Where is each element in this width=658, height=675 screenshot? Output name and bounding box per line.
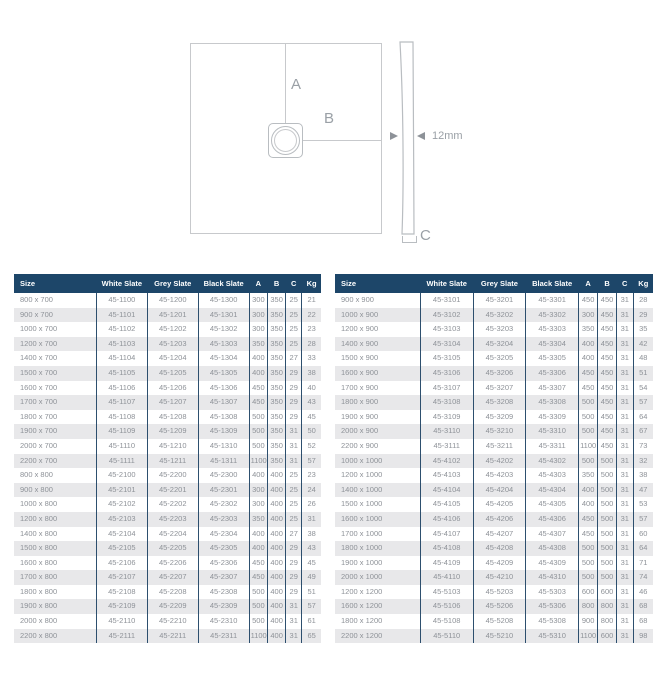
table-row: 1700 x 100045-410745-420745-430745050031… <box>335 527 653 542</box>
table-cell: 45-1101 <box>96 308 147 323</box>
table-cell: 45-3101 <box>420 293 473 308</box>
table-cell: 45-2201 <box>147 483 198 498</box>
table-cell: 350 <box>268 308 286 323</box>
table-cell: 450 <box>579 293 598 308</box>
table-cell: 31 <box>616 629 633 644</box>
table-cell: 48 <box>633 351 653 366</box>
table-cell: 45-5210 <box>473 629 526 644</box>
table-cell: 45-1108 <box>96 410 147 425</box>
dimension-c-bracket <box>402 236 417 243</box>
table-cell: 31 <box>616 614 633 629</box>
size-table-700-800: SizeWhite SlateGrey SlateBlack SlateABCK… <box>14 274 321 643</box>
table-cell: 1600 x 700 <box>14 381 96 396</box>
column-header: C <box>616 274 633 293</box>
table-cell: 68 <box>633 599 653 614</box>
table-cell: 1400 x 700 <box>14 351 96 366</box>
table-cell: 1000 x 700 <box>14 322 96 337</box>
table-cell: 31 <box>286 614 302 629</box>
table-cell: 45-1207 <box>147 395 198 410</box>
column-header: B <box>598 274 617 293</box>
table-cell: 45-3309 <box>526 410 579 425</box>
table-cell: 1500 x 700 <box>14 366 96 381</box>
table-cell: 500 <box>598 468 617 483</box>
table-cell: 21 <box>302 293 321 308</box>
table-cell: 500 <box>579 395 598 410</box>
table-cell: 45-4108 <box>420 541 473 556</box>
table-cell: 45-5306 <box>526 599 579 614</box>
size-table-900-1000-1200: SizeWhite SlateGrey SlateBlack SlateABCK… <box>335 274 653 643</box>
table-cell: 450 <box>598 308 617 323</box>
table-cell: 31 <box>286 629 302 644</box>
table-cell: 31 <box>616 454 633 469</box>
table-cell: 1000 x 900 <box>335 308 420 323</box>
table-cell: 25 <box>286 308 302 323</box>
table-cell: 450 <box>579 527 598 542</box>
table-cell: 28 <box>633 293 653 308</box>
table-cell: 350 <box>268 439 286 454</box>
table-cell: 31 <box>286 439 302 454</box>
table-cell: 68 <box>633 614 653 629</box>
table-cell: 350 <box>249 337 268 352</box>
table-cell: 98 <box>633 629 653 644</box>
table-cell: 23 <box>302 468 321 483</box>
table-cell: 71 <box>633 556 653 571</box>
table-cell: 2200 x 1200 <box>335 629 420 644</box>
table-cell: 45-3104 <box>420 337 473 352</box>
table-cell: 1500 x 1000 <box>335 497 420 512</box>
table-cell: 2200 x 700 <box>14 454 96 469</box>
table-cell: 45-1202 <box>147 322 198 337</box>
table-cell: 45-3302 <box>526 308 579 323</box>
table-row: 1200 x 80045-210345-220345-2303350400253… <box>14 512 321 527</box>
table-cell: 45-2308 <box>198 585 249 600</box>
column-header: White Slate <box>96 274 147 293</box>
table-cell: 450 <box>249 556 268 571</box>
table-cell: 31 <box>616 351 633 366</box>
table-row: 1400 x 70045-110445-120445-1304400350273… <box>14 351 321 366</box>
table-cell: 51 <box>633 366 653 381</box>
table-cell: 1400 x 900 <box>335 337 420 352</box>
table-cell: 29 <box>286 366 302 381</box>
table-cell: 500 <box>598 570 617 585</box>
table-cell: 38 <box>302 527 321 542</box>
table-cell: 400 <box>268 527 286 542</box>
column-header: White Slate <box>420 274 473 293</box>
table-row: 1800 x 120045-510845-520845-530890080031… <box>335 614 653 629</box>
table-cell: 25 <box>286 337 302 352</box>
table-cell: 1200 x 1000 <box>335 468 420 483</box>
table-cell: 45-1305 <box>198 366 249 381</box>
table-cell: 45-3202 <box>473 308 526 323</box>
table-cell: 29 <box>286 395 302 410</box>
table-cell: 45-4207 <box>473 527 526 542</box>
table-cell: 31 <box>616 497 633 512</box>
table-cell: 31 <box>616 337 633 352</box>
table-cell: 45-2304 <box>198 527 249 542</box>
table-cell: 1000 x 1000 <box>335 454 420 469</box>
column-header: Kg <box>302 274 321 293</box>
table-cell: 45-4310 <box>526 570 579 585</box>
table-cell: 65 <box>302 629 321 644</box>
table-cell: 31 <box>616 366 633 381</box>
column-header: A <box>249 274 268 293</box>
table-cell: 45-1307 <box>198 395 249 410</box>
table-cell: 46 <box>633 585 653 600</box>
table-row: 1000 x 80045-210245-220245-2302300400252… <box>14 497 321 512</box>
table-cell: 23 <box>302 322 321 337</box>
table-cell: 45-2100 <box>96 468 147 483</box>
table-cell: 25 <box>286 322 302 337</box>
table-cell: 25 <box>286 483 302 498</box>
table-cell: 45-2301 <box>198 483 249 498</box>
table-cell: 45-5308 <box>526 614 579 629</box>
table-cell: 45-1205 <box>147 366 198 381</box>
table-cell: 300 <box>249 483 268 498</box>
table-cell: 1900 x 700 <box>14 424 96 439</box>
table-cell: 31 <box>616 293 633 308</box>
table-row: 1800 x 80045-210845-220845-2308500400295… <box>14 585 321 600</box>
table-cell: 38 <box>302 366 321 381</box>
table-cell: 350 <box>268 454 286 469</box>
table-cell: 29 <box>286 381 302 396</box>
table-row: 1600 x 80045-210645-220645-2306450400294… <box>14 556 321 571</box>
table-cell: 25 <box>286 293 302 308</box>
table-cell: 31 <box>616 541 633 556</box>
table-row: 2200 x 80045-211145-221145-2311110040031… <box>14 629 321 644</box>
table-cell: 31 <box>616 395 633 410</box>
table-cell: 400 <box>268 629 286 644</box>
column-header: C <box>286 274 302 293</box>
table-cell: 45-2209 <box>147 599 198 614</box>
table-cell: 350 <box>268 395 286 410</box>
table-cell: 400 <box>268 599 286 614</box>
table-row: 1800 x 90045-310845-320845-3308500450315… <box>335 395 653 410</box>
table-cell: 300 <box>249 308 268 323</box>
table-cell: 400 <box>268 570 286 585</box>
table-cell: 45-2111 <box>96 629 147 644</box>
table-cell: 45-2205 <box>147 541 198 556</box>
table-cell: 400 <box>268 585 286 600</box>
table-cell: 45-1103 <box>96 337 147 352</box>
table-cell: 350 <box>268 337 286 352</box>
table-cell: 45-1203 <box>147 337 198 352</box>
table-cell: 400 <box>268 512 286 527</box>
thickness-arrow-left-icon <box>390 132 398 140</box>
table-cell: 45-3206 <box>473 366 526 381</box>
table-cell: 45-5108 <box>420 614 473 629</box>
table-cell: 45-4208 <box>473 541 526 556</box>
table-cell: 1800 x 700 <box>14 410 96 425</box>
table-cell: 1600 x 800 <box>14 556 96 571</box>
table-row: 1200 x 100045-410345-420345-430335050031… <box>335 468 653 483</box>
table-cell: 350 <box>579 322 598 337</box>
table-cell: 2200 x 800 <box>14 629 96 644</box>
table-cell: 1900 x 1000 <box>335 556 420 571</box>
table-cell: 45-3106 <box>420 366 473 381</box>
column-header: Grey Slate <box>473 274 526 293</box>
table-row: 1600 x 90045-310645-320645-3306450450315… <box>335 366 653 381</box>
table-cell: 500 <box>598 512 617 527</box>
table-cell: 31 <box>616 410 633 425</box>
table-cell: 57 <box>633 512 653 527</box>
table-cell: 45-2211 <box>147 629 198 644</box>
table-cell: 450 <box>598 410 617 425</box>
table-cell: 45-3110 <box>420 424 473 439</box>
table-cell: 45-3204 <box>473 337 526 352</box>
table-cell: 450 <box>598 337 617 352</box>
table-cell: 45-4303 <box>526 468 579 483</box>
table-cell: 1100 <box>579 629 598 644</box>
table-row: 2000 x 80045-211045-221045-2310500400316… <box>14 614 321 629</box>
table-cell: 45-4107 <box>420 527 473 542</box>
table-cell: 45-3107 <box>420 381 473 396</box>
table-cell: 31 <box>616 556 633 571</box>
drain-inner-ring <box>274 129 297 152</box>
table-cell: 25 <box>286 512 302 527</box>
table-cell: 73 <box>633 439 653 454</box>
table-cell: 45-2106 <box>96 556 147 571</box>
table-row: 1400 x 100045-410445-420445-430440050031… <box>335 483 653 498</box>
column-header: Size <box>14 274 96 293</box>
tray-side-profile <box>397 41 419 236</box>
table-cell: 450 <box>249 381 268 396</box>
table-cell: 2000 x 900 <box>335 424 420 439</box>
table-cell: 45-1111 <box>96 454 147 469</box>
table-row: 1900 x 90045-310945-320945-3309500450316… <box>335 410 653 425</box>
table-cell: 400 <box>579 351 598 366</box>
table-cell: 300 <box>579 308 598 323</box>
table-cell: 45-1106 <box>96 381 147 396</box>
table-cell: 45-1100 <box>96 293 147 308</box>
table-cell: 1800 x 800 <box>14 585 96 600</box>
table-cell: 45-1102 <box>96 322 147 337</box>
table-cell: 45-5310 <box>526 629 579 644</box>
table-cell: 350 <box>268 293 286 308</box>
table-cell: 45-2203 <box>147 512 198 527</box>
table-cell: 22 <box>302 308 321 323</box>
table-cell: 29 <box>633 308 653 323</box>
table-cell: 400 <box>268 556 286 571</box>
table-cell: 500 <box>598 556 617 571</box>
table-cell: 45-2300 <box>198 468 249 483</box>
table-cell: 45-4306 <box>526 512 579 527</box>
table-cell: 2000 x 700 <box>14 439 96 454</box>
table-cell: 800 <box>579 599 598 614</box>
table-cell: 45-3108 <box>420 395 473 410</box>
table-cell: 45-4110 <box>420 570 473 585</box>
table-cell: 45-2202 <box>147 497 198 512</box>
table-cell: 49 <box>302 570 321 585</box>
table-cell: 500 <box>598 527 617 542</box>
table-cell: 45-2103 <box>96 512 147 527</box>
table-cell: 450 <box>598 322 617 337</box>
table-cell: 45-3303 <box>526 322 579 337</box>
table-cell: 800 <box>598 614 617 629</box>
table-cell: 31 <box>616 585 633 600</box>
table-cell: 45 <box>302 410 321 425</box>
spec-tables: SizeWhite SlateGrey SlateBlack SlateABCK… <box>14 274 653 643</box>
table-cell: 27 <box>286 351 302 366</box>
table-cell: 31 <box>302 512 321 527</box>
table-cell: 45-1300 <box>198 293 249 308</box>
table-cell: 45-1107 <box>96 395 147 410</box>
table-cell: 31 <box>286 424 302 439</box>
table-cell: 45-3211 <box>473 439 526 454</box>
table-cell: 450 <box>598 439 617 454</box>
table-cell: 32 <box>633 454 653 469</box>
table-cell: 400 <box>268 614 286 629</box>
table-cell: 45-5208 <box>473 614 526 629</box>
table-cell: 1500 x 900 <box>335 351 420 366</box>
table-cell: 1900 x 900 <box>335 410 420 425</box>
table-cell: 45-2200 <box>147 468 198 483</box>
table-row: 900 x 90045-310145-320145-33014504503128 <box>335 293 653 308</box>
table-cell: 450 <box>598 351 617 366</box>
table-cell: 1600 x 1000 <box>335 512 420 527</box>
table-cell: 45-3311 <box>526 439 579 454</box>
table-row: 1000 x 90045-310245-320245-3302300450312… <box>335 308 653 323</box>
table-cell: 45-3301 <box>526 293 579 308</box>
table-cell: 45-1105 <box>96 366 147 381</box>
table-cell: 52 <box>302 439 321 454</box>
table-cell: 25 <box>286 468 302 483</box>
table-cell: 400 <box>268 541 286 556</box>
table-cell: 45-1204 <box>147 351 198 366</box>
table-cell: 45-4102 <box>420 454 473 469</box>
table-cell: 450 <box>579 366 598 381</box>
table-cell: 1700 x 900 <box>335 381 420 396</box>
table-cell: 31 <box>616 483 633 498</box>
table-cell: 31 <box>616 439 633 454</box>
table-cell: 45-2104 <box>96 527 147 542</box>
table-row: 1900 x 80045-210945-220945-2309500400315… <box>14 599 321 614</box>
table-cell: 1400 x 800 <box>14 527 96 542</box>
table-cell: 45-3201 <box>473 293 526 308</box>
table-row: 800 x 80045-210045-220045-23004004002523 <box>14 468 321 483</box>
table-cell: 45-3208 <box>473 395 526 410</box>
table-row: 900 x 80045-210145-220145-23013004002524 <box>14 483 321 498</box>
table-cell: 45-3307 <box>526 381 579 396</box>
table-row: 1700 x 90045-310745-320745-3307450450315… <box>335 381 653 396</box>
table-cell: 45-1109 <box>96 424 147 439</box>
table-cell: 31 <box>616 570 633 585</box>
table-cell: 45-3305 <box>526 351 579 366</box>
table-cell: 45-3205 <box>473 351 526 366</box>
table-cell: 45-2310 <box>198 614 249 629</box>
table-cell: 54 <box>633 381 653 396</box>
table-cell: 45-5110 <box>420 629 473 644</box>
table-cell: 45-1311 <box>198 454 249 469</box>
table-row: 1400 x 90045-310445-320445-3304400450314… <box>335 337 653 352</box>
table-cell: 45-4309 <box>526 556 579 571</box>
table-row: 1600 x 70045-110645-120645-1306450350294… <box>14 381 321 396</box>
table-cell: 45-2110 <box>96 614 147 629</box>
table-row: 1600 x 100045-410645-420645-430645050031… <box>335 512 653 527</box>
table-cell: 900 <box>579 614 598 629</box>
table-cell: 45-2204 <box>147 527 198 542</box>
table-cell: 500 <box>249 410 268 425</box>
thickness-arrow-right-icon <box>417 132 425 140</box>
table-cell: 45-1301 <box>198 308 249 323</box>
table-cell: 400 <box>268 483 286 498</box>
table-cell: 31 <box>616 308 633 323</box>
table-row: 1800 x 100045-410845-420845-430850050031… <box>335 541 653 556</box>
table-cell: 31 <box>616 599 633 614</box>
table-cell: 45-2311 <box>198 629 249 644</box>
table-cell: 45-3308 <box>526 395 579 410</box>
table-cell: 400 <box>579 483 598 498</box>
table-row: 1400 x 80045-210445-220445-2304400400273… <box>14 527 321 542</box>
table-cell: 1100 <box>579 439 598 454</box>
table-cell: 500 <box>579 410 598 425</box>
table-cell: 900 x 800 <box>14 483 96 498</box>
table-cell: 45-4304 <box>526 483 579 498</box>
table-cell: 67 <box>633 424 653 439</box>
table-cell: 45-1306 <box>198 381 249 396</box>
table-cell: 1900 x 800 <box>14 599 96 614</box>
table-cell: 47 <box>633 483 653 498</box>
table-cell: 43 <box>302 541 321 556</box>
table-cell: 1600 x 900 <box>335 366 420 381</box>
table-cell: 45-3105 <box>420 351 473 366</box>
table-cell: 45-4308 <box>526 541 579 556</box>
table-cell: 45-3203 <box>473 322 526 337</box>
table-cell: 800 x 800 <box>14 468 96 483</box>
table-cell: 800 x 700 <box>14 293 96 308</box>
drain-waste-icon <box>268 123 303 158</box>
table-cell: 2000 x 800 <box>14 614 96 629</box>
table-cell: 400 <box>249 541 268 556</box>
table-cell: 45-3310 <box>526 424 579 439</box>
table-cell: 500 <box>249 424 268 439</box>
table-row: 2200 x 70045-111145-121145-1311110035031… <box>14 454 321 469</box>
table-cell: 26 <box>302 497 321 512</box>
table-row: 2000 x 90045-311045-321045-3310500450316… <box>335 424 653 439</box>
table-cell: 350 <box>268 410 286 425</box>
table-cell: 45-3102 <box>420 308 473 323</box>
table-cell: 1700 x 700 <box>14 395 96 410</box>
table-cell: 45-3111 <box>420 439 473 454</box>
table-cell: 45-5203 <box>473 585 526 600</box>
table-cell: 45-4302 <box>526 454 579 469</box>
table-cell: 1800 x 1200 <box>335 614 420 629</box>
table-cell: 45-2208 <box>147 585 198 600</box>
table-cell: 31 <box>616 512 633 527</box>
table-cell: 51 <box>302 585 321 600</box>
table-cell: 350 <box>268 322 286 337</box>
table-cell: 45-4206 <box>473 512 526 527</box>
column-header: Black Slate <box>526 274 579 293</box>
table-cell: 45-2307 <box>198 570 249 585</box>
table-cell: 45-2302 <box>198 497 249 512</box>
table-cell: 31 <box>286 599 302 614</box>
table-cell: 29 <box>286 585 302 600</box>
table-cell: 1400 x 1000 <box>335 483 420 498</box>
table-cell: 600 <box>579 585 598 600</box>
table-cell: 1200 x 900 <box>335 322 420 337</box>
table-cell: 64 <box>633 541 653 556</box>
table-cell: 500 <box>598 483 617 498</box>
table-cell: 45 <box>302 556 321 571</box>
table-cell: 800 <box>598 599 617 614</box>
table-cell: 45-2105 <box>96 541 147 556</box>
table-cell: 400 <box>579 337 598 352</box>
table-row: 1000 x 70045-110245-120245-1302300350252… <box>14 322 321 337</box>
table-cell: 400 <box>249 366 268 381</box>
table-cell: 1200 x 700 <box>14 337 96 352</box>
table-cell: 45-1209 <box>147 424 198 439</box>
table-cell: 45-4209 <box>473 556 526 571</box>
